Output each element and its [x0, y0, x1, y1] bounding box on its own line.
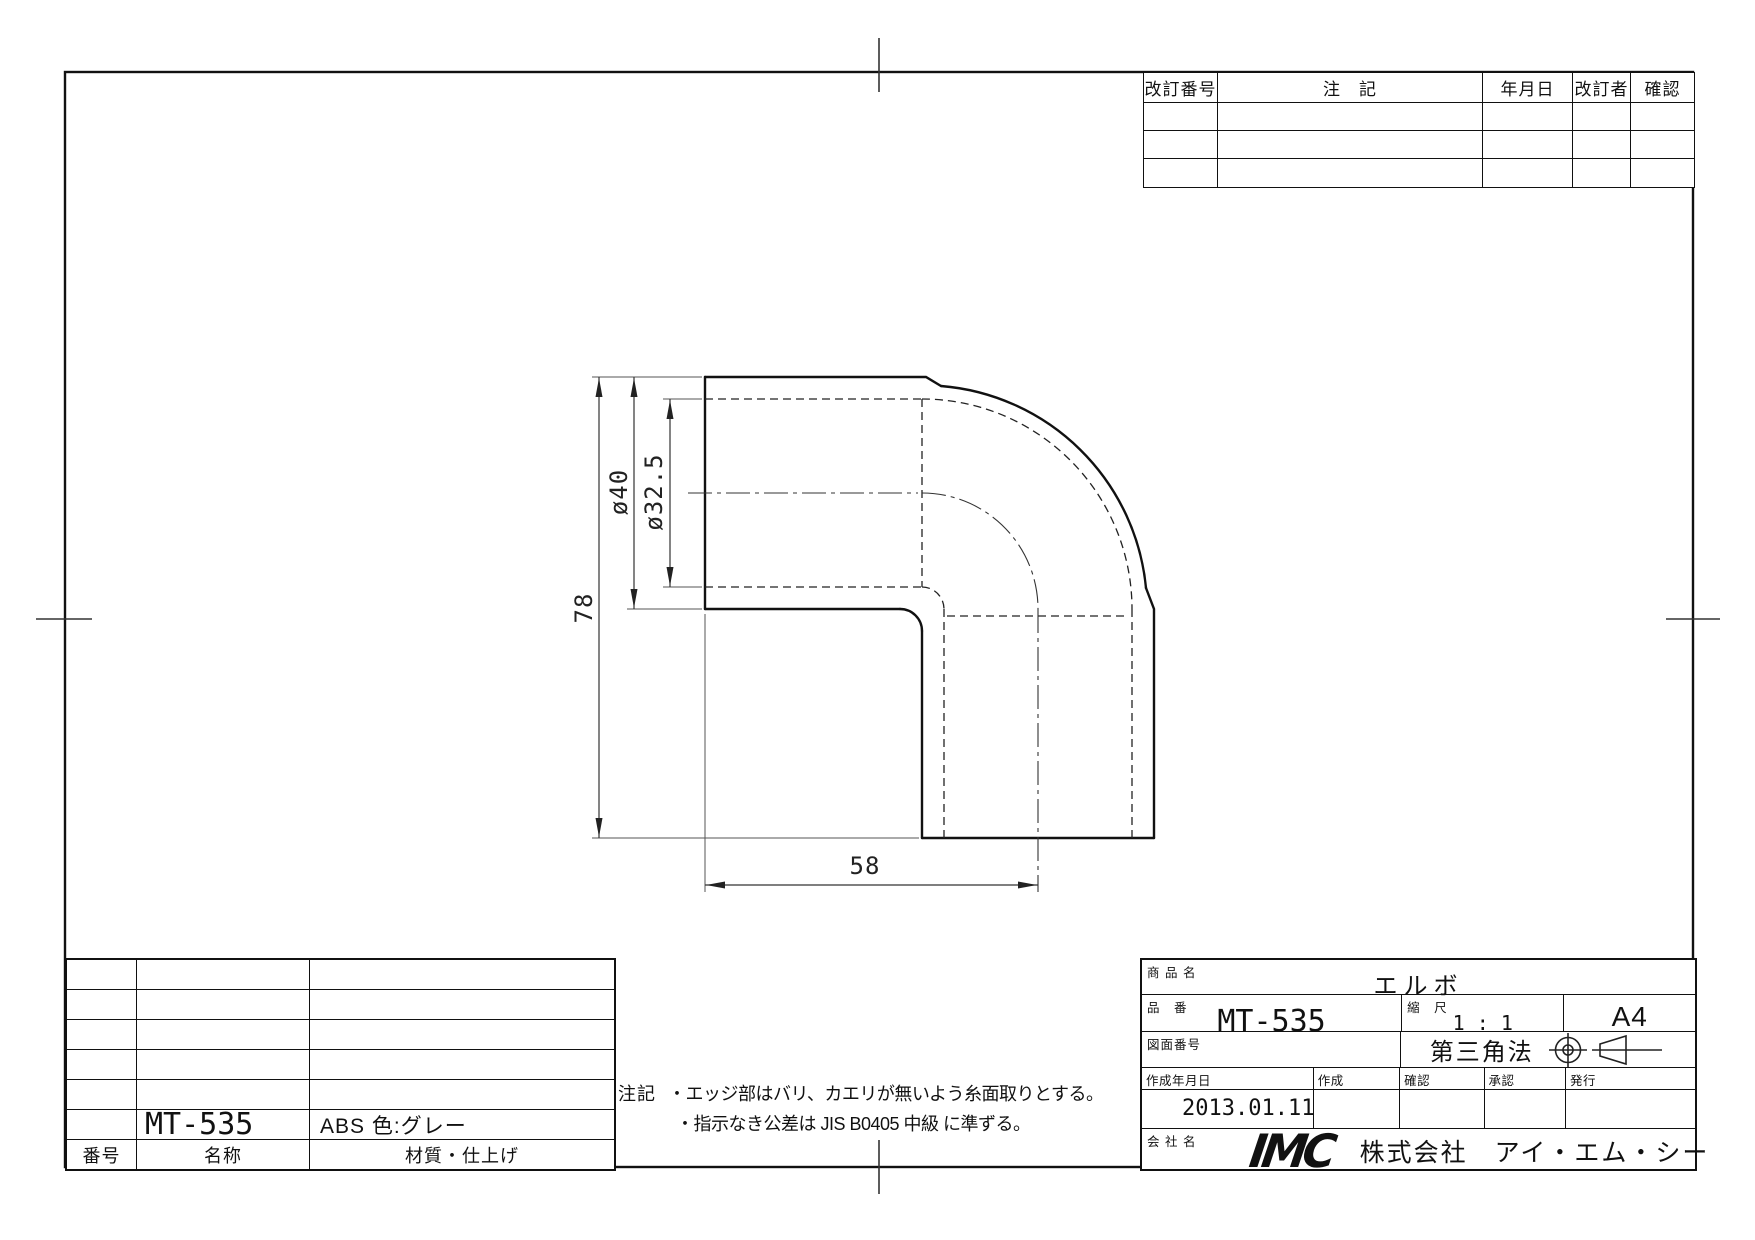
revision-cell: [1631, 159, 1694, 187]
paper-size-value: A4: [1564, 995, 1695, 1035]
revision-cell: [1631, 131, 1694, 159]
checked-by-label: 確認: [1404, 1070, 1430, 1089]
parts-cell: [137, 1050, 310, 1080]
revision-cell: [1483, 159, 1573, 187]
parts-cell: [137, 1080, 310, 1110]
revision-cell: [1218, 159, 1483, 187]
parts-header-material: 材質・仕上げ: [310, 1140, 614, 1169]
parts-cell: [137, 1020, 310, 1050]
revision-cell: [1483, 131, 1573, 159]
notes-line-2: ・指示なき公差は JIS B0405 中級 に準ずる。: [676, 1110, 1104, 1140]
parts-header-name: 名称: [137, 1140, 310, 1169]
approved-by-label: 承認: [1489, 1070, 1515, 1089]
part-number-label: 品 番: [1147, 997, 1188, 1016]
parts-material: ABS 色:グレー: [310, 1110, 614, 1140]
created-date-label: 作成年月日: [1146, 1070, 1211, 1089]
parts-cell: [310, 1050, 614, 1080]
revision-cell: [1218, 103, 1483, 131]
company-label: 会 社 名: [1147, 1131, 1196, 1150]
general-notes: 注記 ・エッジ部はバリ、カエリが無いよう糸面取りとする。 ・指示なき公差は JI…: [618, 1080, 1104, 1140]
revision-cell: [1144, 159, 1218, 187]
parts-header-number: 番号: [67, 1140, 137, 1169]
projection-method-label: 第三角法: [1430, 1032, 1534, 1067]
issued-by-label: 発行: [1570, 1070, 1596, 1089]
imc-logo: IMC: [1247, 1131, 1334, 1171]
made-by-label: 作成: [1318, 1070, 1344, 1089]
parts-cell: [67, 1020, 137, 1050]
dim-outer-diameter-label: ø40: [605, 452, 633, 532]
parts-part-number: MT-535: [137, 1110, 310, 1140]
parts-cell: [137, 960, 310, 990]
parts-cell: [67, 1110, 137, 1140]
elbow-centerlines: [688, 493, 1038, 892]
revision-cell: [1144, 103, 1218, 131]
product-name-value: エルボ: [1142, 960, 1695, 1000]
revision-table: 改訂番号 注 記 年月日 改訂者 確認: [1143, 72, 1695, 188]
parts-cell: [310, 990, 614, 1020]
elbow-outline: [705, 377, 1154, 838]
parts-table: MT-535 ABS 色:グレー 番号 名称 材質・仕上げ: [65, 958, 616, 1171]
drawing-number-label: 図面番号: [1147, 1034, 1201, 1053]
dim-width-label: 58: [835, 852, 895, 880]
product-name-label: 商 品 名: [1147, 962, 1196, 981]
parts-cell: [67, 1080, 137, 1110]
revision-cell: [1573, 131, 1631, 159]
parts-cell: [67, 1050, 137, 1080]
parts-cell: [310, 1080, 614, 1110]
revision-header-date: 年月日: [1483, 73, 1573, 103]
title-block: 商 品 名 エルボ 品 番 MT-535 縮 尺 1 : 1 A4 図面番号: [1140, 958, 1697, 1171]
drawing-sheet: 78 ø40 ø32.5 58 改訂番号 注 記 年月日 改訂者 確認: [0, 0, 1755, 1240]
scale-label: 縮 尺: [1407, 997, 1448, 1016]
revision-cell: [1631, 103, 1694, 131]
revision-header-note: 注 記: [1218, 73, 1483, 103]
notes-label: 注記: [618, 1080, 656, 1106]
revision-header-number: 改訂番号: [1144, 73, 1218, 103]
company-name-text: 株式会社 アイ・エム・シー: [1360, 1133, 1710, 1169]
revision-cell: [1573, 159, 1631, 187]
parts-cell: [310, 1020, 614, 1050]
parts-cell: [67, 990, 137, 1020]
parts-cell: [137, 990, 310, 1020]
third-angle-projection-icon: [1548, 1033, 1666, 1067]
dim-bore-diameter-label: ø32.5: [640, 442, 668, 542]
dim-height-label: 78: [570, 578, 598, 638]
created-date-value: 2013.01.11: [1182, 1096, 1314, 1121]
revision-cell: [1483, 103, 1573, 131]
notes-line-1: ・エッジ部はバリ、カエリが無いよう糸面取りとする。: [668, 1080, 1104, 1106]
parts-cell: [310, 960, 614, 990]
revision-header-checked: 確認: [1631, 73, 1694, 103]
revision-cell: [1144, 131, 1218, 159]
revision-cell: [1573, 103, 1631, 131]
parts-cell: [67, 960, 137, 990]
revision-header-revised-by: 改訂者: [1573, 73, 1631, 103]
revision-cell: [1218, 131, 1483, 159]
